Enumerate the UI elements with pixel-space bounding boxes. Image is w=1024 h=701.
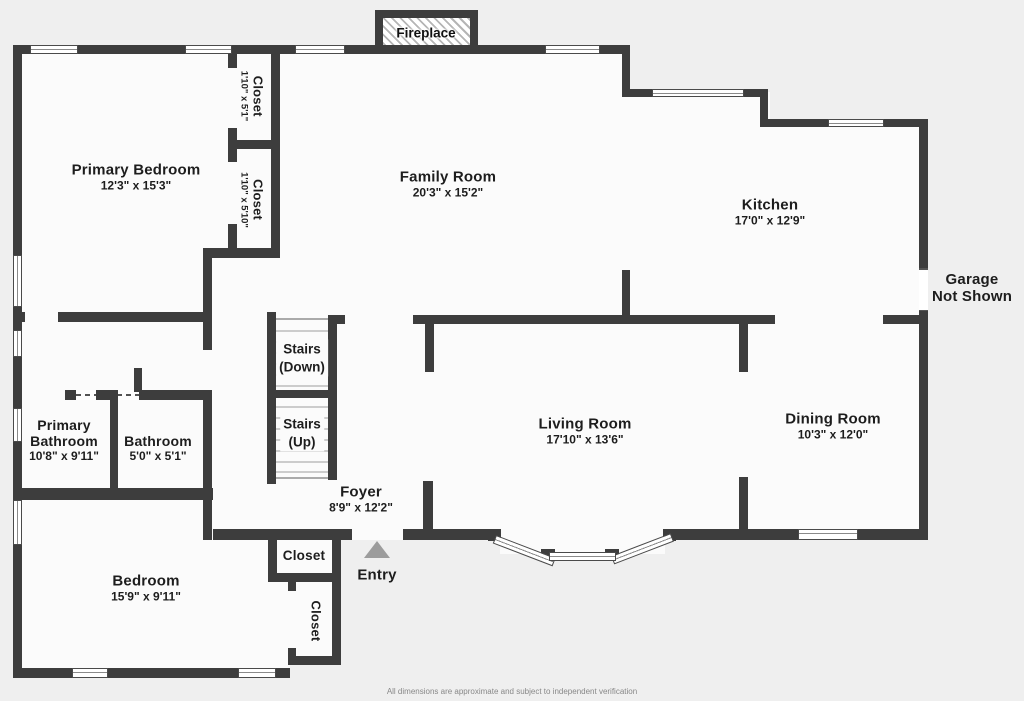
- window: [295, 45, 345, 54]
- room-dims: 10'8" x 9'11": [15, 449, 113, 465]
- room-label-kitchen: Kitchen 17'0" x 12'9": [735, 197, 805, 230]
- stair-tread: [276, 461, 328, 463]
- window: [72, 668, 108, 678]
- wall: [919, 119, 928, 270]
- room-label-primary-bathroom: Primary Bathroom 10'8" x 9'11": [15, 417, 113, 465]
- stairs-text: (Down): [279, 359, 325, 374]
- room-label-closet-upper-1: Closet 1'10" x 5'1": [237, 71, 264, 122]
- room-dims: 17'0" x 12'9": [735, 214, 805, 230]
- garage-text: Not Shown: [932, 288, 1012, 305]
- room-label-closet-upper-2: Closet 1'10" x 5'10": [237, 172, 264, 228]
- room-label-primary-bedroom: Primary Bedroom 12'3" x 15'3": [72, 162, 201, 195]
- entry-arrow-icon: [364, 541, 390, 558]
- room-dims: 17'10" x 13'6": [538, 433, 631, 449]
- stairs-threshold: [276, 477, 328, 479]
- room-label-bedroom: Bedroom 15'9" x 9'11": [111, 573, 181, 606]
- wall: [739, 323, 748, 372]
- wall: [883, 315, 928, 324]
- wall: [58, 312, 212, 322]
- wall: [332, 529, 341, 665]
- wall: [622, 270, 630, 320]
- room-dims: 20'3" x 15'2": [400, 186, 496, 202]
- window: [13, 330, 22, 357]
- wall: [919, 311, 928, 539]
- wall: [203, 248, 212, 350]
- room-name: Primary Bathroom: [15, 417, 113, 449]
- stairs-divider-wall: [267, 390, 337, 398]
- fireplace-wall: [470, 10, 478, 48]
- room-dims: 1'10" x 5'1": [237, 71, 249, 122]
- wall: [425, 323, 434, 372]
- stairs-threshold: [276, 318, 328, 320]
- room-dims: 15'9" x 9'11": [111, 590, 181, 606]
- room-label-family-room: Family Room 20'3" x 15'2": [400, 169, 496, 202]
- stairs-up-label: Stairs (Up): [280, 414, 324, 451]
- room-name: Bathroom: [124, 433, 192, 449]
- stair-tread: [276, 385, 328, 387]
- wall: [13, 488, 213, 500]
- room-name: Foyer: [329, 484, 393, 501]
- room-name: Kitchen: [735, 197, 805, 214]
- shower-door: [76, 390, 96, 400]
- room-dims: 10'3" x 12'0": [785, 428, 881, 444]
- stair-tread: [276, 406, 328, 408]
- garage-note: Garage Not Shown: [932, 271, 1012, 306]
- stairs-text: Stairs: [283, 416, 321, 431]
- entry-opening: [352, 529, 403, 540]
- room-name: Closet: [250, 71, 265, 122]
- stairs-down-label: Stairs (Down): [276, 339, 328, 376]
- room-name: Closet: [283, 548, 325, 564]
- room-name: Dining Room: [785, 411, 881, 428]
- stairs-text: Stairs: [283, 341, 321, 356]
- window: [13, 255, 22, 307]
- wall: [228, 140, 280, 149]
- wall: [413, 315, 775, 324]
- stair-tread: [276, 471, 328, 473]
- room-dims: 8'9" x 12'2": [329, 501, 393, 517]
- room-dims: 5'0" x 5'1": [124, 449, 192, 465]
- floor-plan: Fireplace: [0, 0, 1024, 701]
- window: [652, 89, 744, 97]
- room-name: Living Room: [538, 416, 631, 433]
- room-dims: 12'3" x 15'3": [72, 179, 201, 195]
- wall: [134, 368, 142, 392]
- wall: [268, 540, 277, 582]
- wall: [403, 529, 497, 540]
- fireplace-wall: [375, 10, 383, 48]
- room-label-living-room: Living Room 17'10" x 13'6": [538, 416, 631, 449]
- entry-label: Entry: [357, 566, 396, 583]
- room-dims: 1'10" x 5'10": [237, 172, 249, 228]
- room-label-dining-room: Dining Room 10'3" x 12'0": [785, 411, 881, 444]
- bay-window: [549, 552, 616, 561]
- window: [185, 45, 232, 54]
- window: [798, 529, 858, 540]
- window: [828, 119, 884, 127]
- room-name: Closet: [250, 172, 265, 228]
- window: [238, 668, 276, 678]
- wall: [13, 312, 25, 322]
- window: [13, 500, 22, 545]
- fireplace-wall: [375, 10, 478, 18]
- garage-text: Garage: [932, 271, 1012, 288]
- wall: [328, 315, 345, 324]
- wall: [13, 45, 22, 678]
- fireplace-label: Fireplace: [396, 26, 455, 41]
- room-name: Closet: [308, 601, 323, 642]
- stairs-text: (Up): [289, 434, 316, 449]
- wall: [268, 573, 341, 582]
- wall: [203, 248, 280, 258]
- room-label-bathroom: Bathroom 5'0" x 5'1": [124, 433, 192, 465]
- entry-text: Entry: [357, 566, 396, 583]
- room-label-closet-lower: Closet: [308, 601, 323, 642]
- room-label-closet-foyer: Closet: [283, 548, 325, 564]
- room-name: Primary Bedroom: [72, 162, 201, 179]
- wall: [203, 390, 212, 540]
- garage-door-opening: [919, 268, 928, 312]
- window: [545, 45, 600, 54]
- stair-tread: [276, 330, 328, 332]
- wall: [228, 54, 237, 68]
- stairs-wall: [267, 312, 276, 484]
- room-name: Bedroom: [111, 573, 181, 590]
- disclaimer-text: All dimensions are approximate and subje…: [387, 687, 637, 696]
- window: [30, 45, 78, 54]
- room-name: Family Room: [400, 169, 496, 186]
- wall: [288, 656, 341, 665]
- room-label-foyer: Foyer 8'9" x 12'2": [329, 484, 393, 517]
- wall: [288, 582, 296, 591]
- wall: [271, 54, 280, 258]
